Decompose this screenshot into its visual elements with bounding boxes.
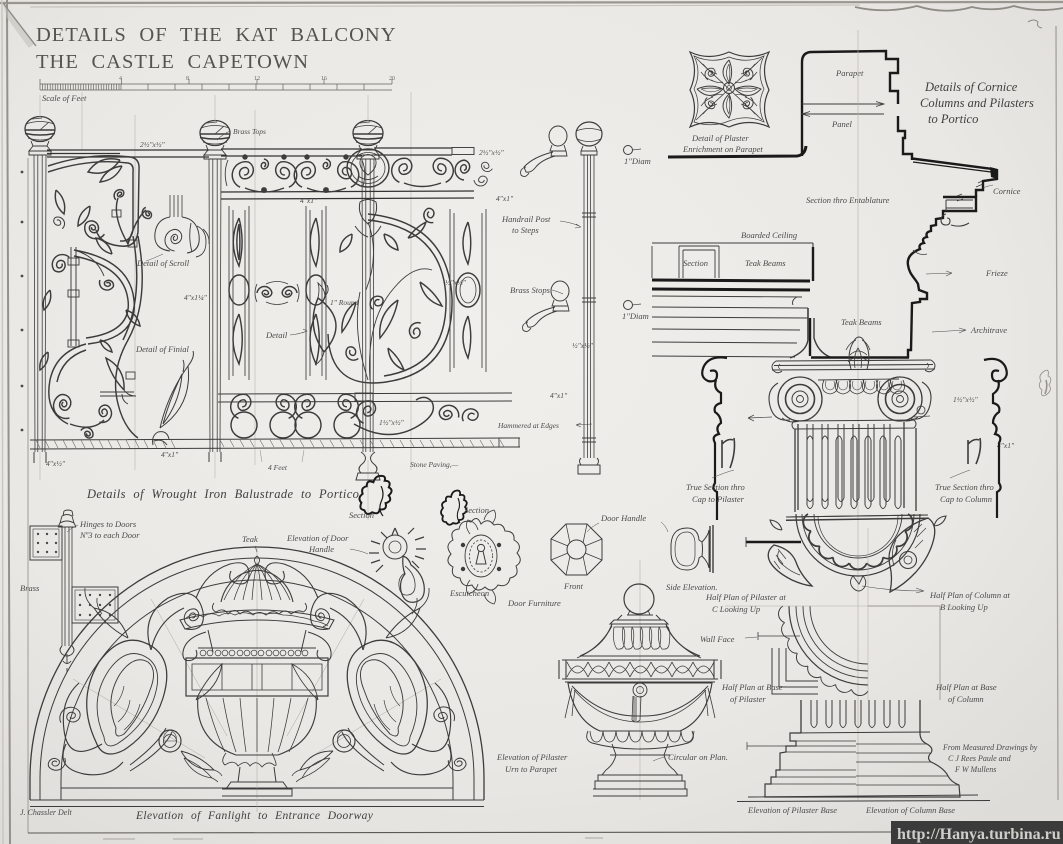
svg-text:http://Hanya.turbina.ru: http://Hanya.turbina.ru	[897, 826, 1061, 843]
svg-text:Enrichment on Parapet: Enrichment on Parapet	[682, 144, 763, 154]
svg-text:Architrave: Architrave	[970, 325, 1007, 335]
svg-text:Frieze: Frieze	[985, 268, 1008, 278]
svg-text:Door Furniture: Door Furniture	[507, 598, 561, 608]
svg-text:8: 8	[186, 76, 189, 82]
svg-text:Section thro Entablature: Section thro Entablature	[806, 195, 890, 205]
svg-text:1½"x½": 1½"x½"	[379, 418, 404, 427]
svg-text:Handle: Handle	[308, 544, 334, 554]
svg-text:1"Diam: 1"Diam	[624, 156, 651, 166]
svg-text:Front: Front	[563, 581, 584, 591]
svg-text:2½"x½": 2½"x½"	[140, 140, 165, 149]
svg-text:Brass: Brass	[20, 583, 40, 593]
svg-text:Details of Cornice: Details of Cornice	[924, 80, 1018, 94]
svg-text:Hinges to Doors: Hinges to Doors	[79, 519, 137, 529]
svg-text:of Column: of Column	[948, 694, 984, 704]
svg-text:to Portico: to Portico	[928, 112, 978, 126]
svg-text:B Looking Up: B Looking Up	[940, 602, 988, 612]
svg-text:4: 4	[119, 76, 122, 82]
svg-text:Detail of Finial: Detail of Finial	[135, 344, 190, 354]
svg-text:Details of Wrought Iron Ba: Details of Wrought Iron Balustrade to Po…	[86, 487, 359, 501]
svg-text:Scale of Feet: Scale of Feet	[42, 93, 87, 103]
svg-text:Nº3 to each Door: Nº3 to each Door	[79, 530, 140, 540]
svg-text:of Pilaster: of Pilaster	[730, 694, 766, 704]
svg-text:Detail: Detail	[265, 330, 288, 340]
svg-text:Section: Section	[349, 510, 374, 520]
svg-text:Cornice: Cornice	[993, 186, 1021, 196]
svg-text:F W Mullens: F W Mullens	[954, 765, 996, 774]
svg-text:True Section thro: True Section thro	[935, 482, 994, 492]
svg-text:Elevation of Pilaster Base: Elevation of Pilaster Base	[747, 805, 837, 815]
svg-text:to Steps: to Steps	[512, 225, 539, 235]
svg-text:Elevation of Fanlight to E: Elevation of Fanlight to Entrance Doorwa…	[135, 810, 374, 822]
svg-text:Brass Stops: Brass Stops	[510, 285, 551, 295]
svg-text:Columns and Pilasters: Columns and Pilasters	[920, 96, 1034, 110]
svg-text:Parapet: Parapet	[835, 68, 864, 78]
svg-text:4 Feet: 4 Feet	[268, 463, 288, 472]
svg-text:4"x½": 4"x½"	[46, 459, 66, 468]
svg-text:THE CASTLE CAPETOWN: THE CASTLE CAPETOWN	[36, 51, 309, 73]
svg-text:Cap to Column: Cap to Column	[940, 494, 992, 504]
svg-text:Brass Tops: Brass Tops	[233, 127, 266, 136]
svg-text:Half Plan of Pilaster at: Half Plan of Pilaster at	[705, 592, 786, 602]
svg-text:4"x1¼": 4"x1¼"	[184, 293, 208, 302]
svg-text:Door Handle: Door Handle	[600, 513, 646, 523]
svg-text:C Looking Up: C Looking Up	[712, 604, 760, 614]
svg-text:Teak Beams: Teak Beams	[745, 258, 786, 268]
svg-text:Boarded Ceiling: Boarded Ceiling	[741, 230, 797, 240]
svg-text:Wall Face: Wall Face	[700, 634, 735, 644]
svg-text:Side Elevation.: Side Elevation.	[666, 582, 717, 592]
svg-text:J. Chassler Delt: J. Chassler Delt	[20, 808, 73, 817]
svg-text:Section: Section	[683, 258, 708, 268]
svg-text:Panel: Panel	[831, 119, 852, 129]
svg-text:Teak: Teak	[242, 534, 258, 544]
svg-text:Detail of Plaster: Detail of Plaster	[691, 133, 749, 143]
svg-text:Elevation of Door: Elevation of Door	[286, 533, 349, 543]
svg-text:4"x1": 4"x1"	[496, 194, 514, 203]
svg-text:Hammered at Edges: Hammered at Edges	[497, 421, 559, 430]
svg-text:4"x1": 4"x1"	[300, 196, 318, 205]
svg-text:Section: Section	[464, 505, 489, 515]
svg-text:Half Plan of Column at: Half Plan of Column at	[929, 590, 1010, 600]
svg-text:Teak Beams: Teak Beams	[841, 317, 882, 327]
svg-text:DETAILS OF THE KAT BALCONY: DETAILS OF THE KAT BALCONY	[36, 24, 397, 46]
svg-text:Elevation of Column Base: Elevation of Column Base	[865, 805, 955, 815]
svg-text:1"Diam: 1"Diam	[622, 311, 649, 321]
svg-text:Handrail Post: Handrail Post	[501, 214, 551, 224]
svg-text:Escutcheon: Escutcheon	[449, 588, 489, 598]
svg-text:16: 16	[321, 76, 327, 82]
svg-text:C J Rees Paule and: C J Rees Paule and	[948, 754, 1012, 763]
svg-text:True Section thro: True Section thro	[686, 482, 745, 492]
svg-text:Urn to Parapet: Urn to Parapet	[505, 764, 558, 774]
svg-text:Elevation of Pilaster: Elevation of Pilaster	[496, 752, 568, 762]
svg-text:4"x1": 4"x1"	[550, 391, 568, 400]
svg-text:From Measured Drawings by: From Measured Drawings by	[942, 743, 1038, 752]
svg-text:Half Plan at Base: Half Plan at Base	[721, 682, 783, 692]
svg-text:4"x1": 4"x1"	[161, 450, 179, 459]
svg-text:2½"x½": 2½"x½"	[479, 148, 504, 157]
svg-text:1½"x½": 1½"x½"	[953, 395, 978, 404]
svg-text:Cap to Pilaster: Cap to Pilaster	[692, 494, 745, 504]
svg-text:Detail of Scroll: Detail of Scroll	[136, 258, 190, 268]
svg-text:Half Plan at Base: Half Plan at Base	[935, 682, 997, 692]
svg-text:Stone Paving,—: Stone Paving,—	[410, 460, 459, 469]
svg-text:Circular on Plan.: Circular on Plan.	[668, 752, 728, 762]
svg-text:12: 12	[254, 76, 260, 82]
svg-text:20: 20	[389, 76, 395, 82]
